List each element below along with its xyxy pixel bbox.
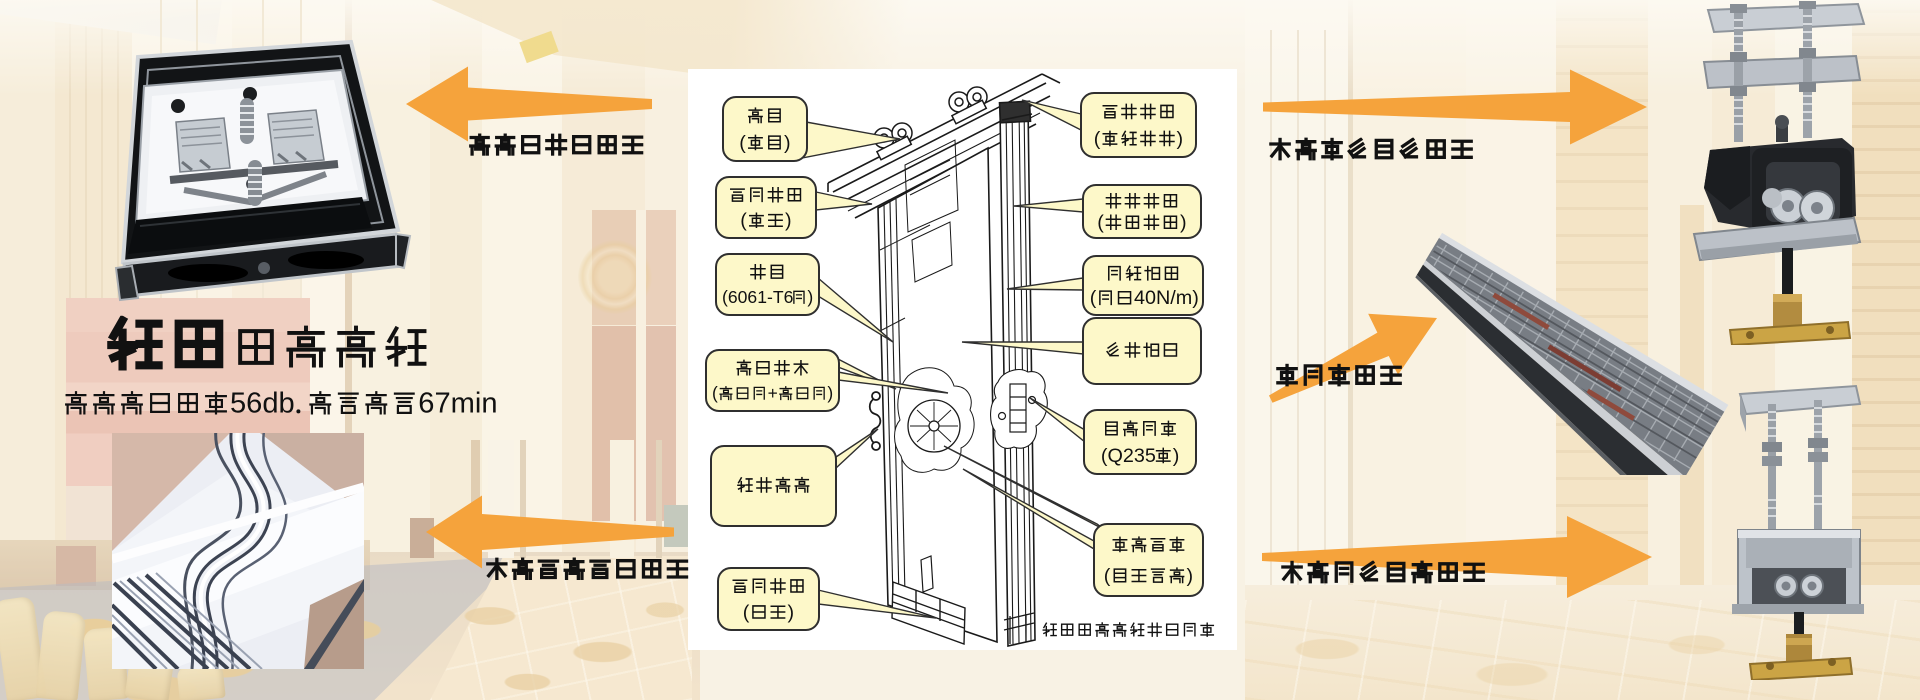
- svg-text:(: (: [1090, 287, 1097, 309]
- svg-text:): ): [785, 210, 792, 232]
- svg-text:(: (: [1104, 565, 1111, 587]
- svg-text:40N/m): 40N/m): [1134, 287, 1199, 309]
- svg-text:): ): [1187, 565, 1194, 587]
- svg-text:(Q235: (Q235: [1101, 445, 1156, 467]
- svg-text:(: (: [1097, 212, 1104, 234]
- svg-text:(: (: [743, 602, 750, 624]
- svg-text:67min: 67min: [418, 388, 497, 420]
- svg-text:): ): [1173, 445, 1180, 467]
- svg-text:56db: 56db: [230, 388, 295, 420]
- svg-text:): ): [1177, 128, 1184, 150]
- svg-text:(: (: [712, 383, 718, 403]
- svg-text:): ): [807, 287, 813, 307]
- svg-text:(: (: [1094, 128, 1101, 150]
- svg-text:+: +: [768, 383, 778, 403]
- svg-text:): ): [788, 602, 795, 624]
- svg-text:): ): [827, 383, 833, 403]
- svg-text:): ): [784, 132, 791, 154]
- svg-text:(6061-T6: (6061-T6: [722, 287, 794, 307]
- svg-text:(: (: [740, 210, 747, 232]
- svg-text:(: (: [739, 132, 746, 154]
- svg-text:): ): [1180, 212, 1187, 234]
